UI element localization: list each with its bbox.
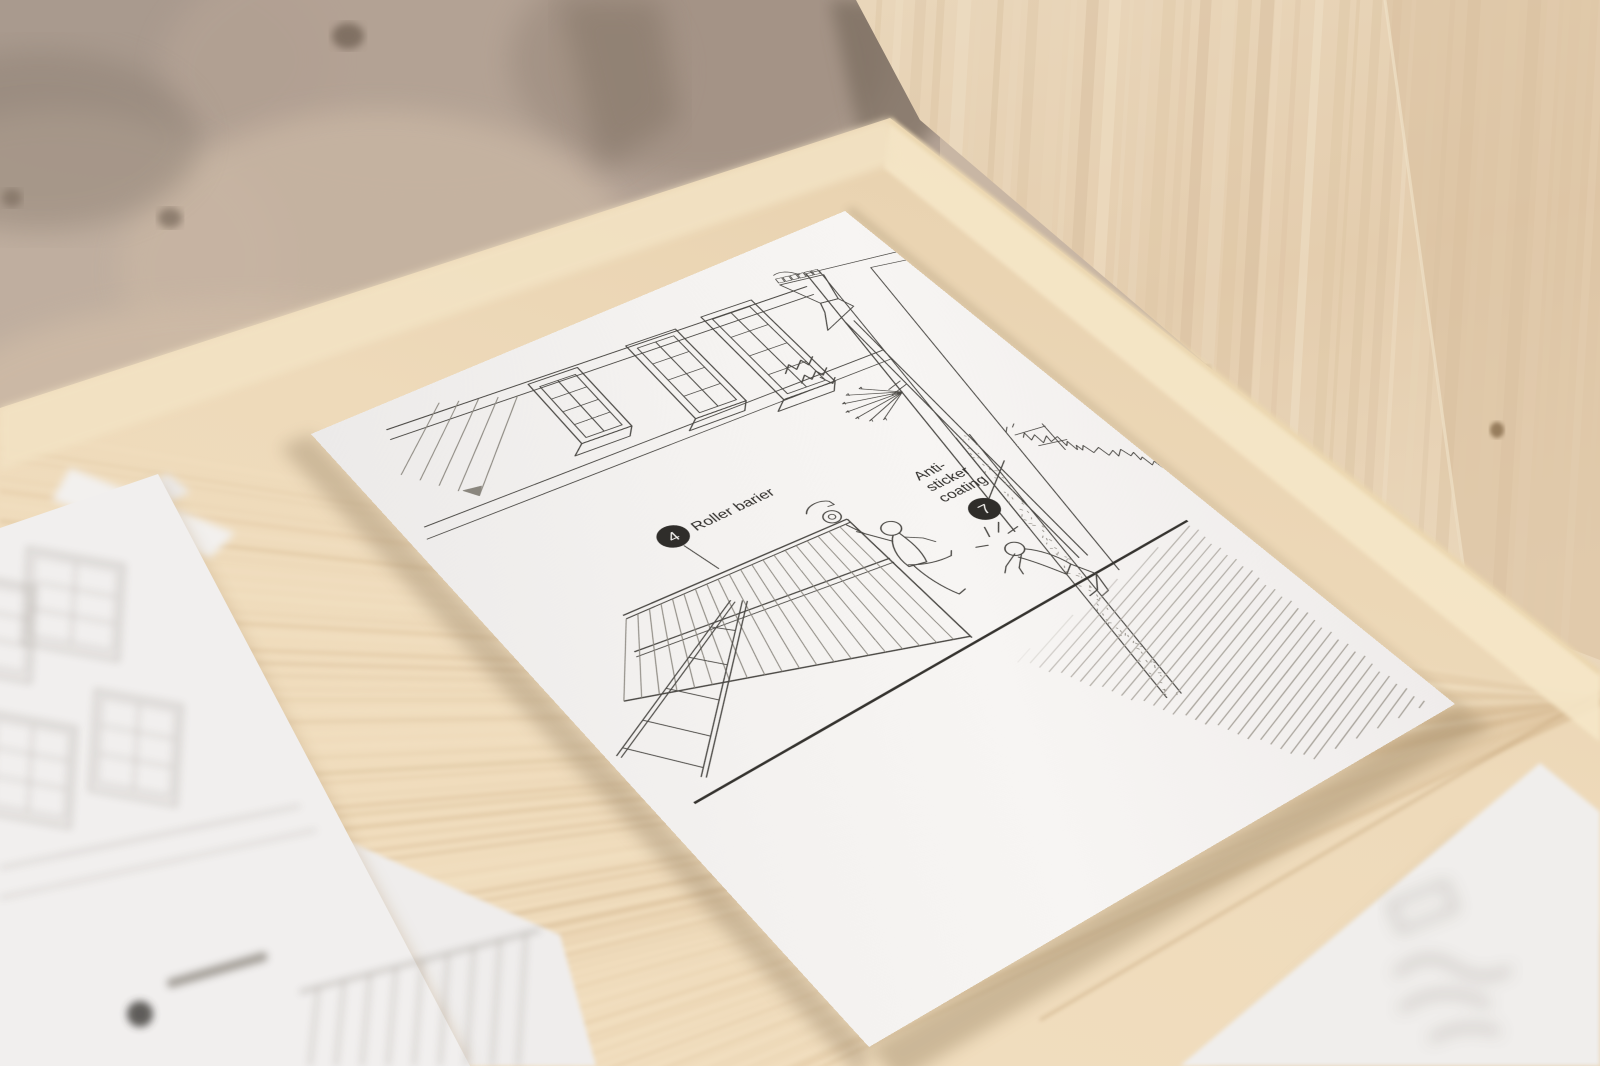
svg-text:Roller barier: Roller barier: [687, 485, 778, 533]
